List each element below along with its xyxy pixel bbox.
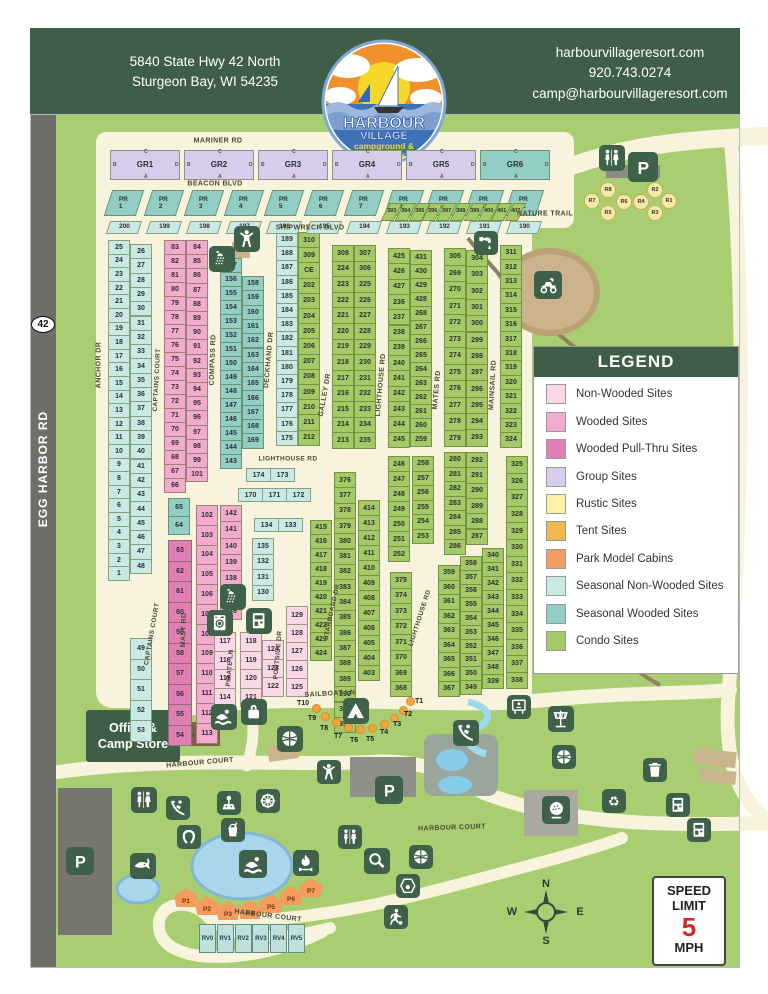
legend-label: Non-Wooded Sites [576,388,672,400]
site-172: 172 [286,488,311,502]
site-380: 380 [334,533,356,549]
site-279: 279 [444,430,466,448]
group-corner-letter: A [366,175,370,180]
site-205: 205 [298,323,320,339]
site-160: 160 [242,305,264,320]
site-139: 139 [220,554,242,571]
compass-s: S [542,935,549,947]
group-corner-letter: C [440,150,444,155]
site-345: 345 [482,618,504,633]
site-170: 170 [238,488,263,502]
site-350: 350 [460,666,482,681]
site-370: 370 [390,650,412,667]
site-411: 411 [358,545,380,561]
site-316: 316 [500,317,522,332]
waterslide-icon [453,720,479,746]
site-134: 134 [254,518,279,532]
site-92: 92 [186,354,208,369]
site-378: 378 [334,503,356,519]
site-154: 154 [220,300,242,315]
legend-swatch [546,604,566,624]
site-299: 299 [466,332,488,349]
site-164: 164 [242,362,264,377]
legend-title: LEGEND [534,347,738,377]
site-369: 369 [390,665,412,682]
site-368: 368 [390,681,412,698]
site-303: 303 [466,266,488,283]
rustic-site-R4: R4 [633,194,649,210]
site-150: 150 [220,356,242,371]
site-250: 250 [388,516,410,532]
site-147: 147 [220,398,242,413]
legend-swatch [546,549,566,569]
site-20: 20 [108,308,130,323]
site-323: 323 [500,418,522,433]
site-148: 148 [220,384,242,399]
site-318: 318 [500,346,522,361]
site-379: 379 [334,518,356,534]
site-218: 218 [332,354,354,371]
soccer-icon [384,905,408,929]
site-76: 76 [164,338,186,353]
site-425: 425 [388,248,410,264]
tent-site-label: T5 [366,736,374,743]
site-30: 30 [130,301,152,316]
site-302: 302 [466,283,488,300]
site-238: 238 [388,325,410,341]
site-335: 335 [506,622,528,640]
website-link[interactable]: harbourvillageresort.com [490,43,768,63]
site-276: 276 [444,380,466,398]
site-97: 97 [186,425,208,440]
site-312: 312 [500,259,522,274]
site-190: 190 [506,221,542,234]
site-36: 36 [130,387,152,402]
site-181: 181 [276,346,298,361]
site-355: 355 [460,597,482,612]
site-239: 239 [388,340,410,356]
site-171: 171 [262,488,287,502]
site-298: 298 [466,348,488,365]
site-337: 337 [506,655,528,673]
site-313: 313 [500,274,522,289]
site-199: 199 [146,221,182,234]
site-339: 339 [482,674,504,689]
site-285: 285 [444,525,466,541]
site-63: 63 [168,540,192,562]
site-27: 27 [130,258,152,273]
site-22: 22 [108,281,130,296]
site-222: 222 [332,292,354,309]
site-246: 246 [388,456,410,472]
site-258: 258 [412,456,434,472]
tent-site-dot-T6 [356,725,365,734]
site-51: 51 [130,679,152,701]
site-412: 412 [358,530,380,546]
site-206: 206 [298,338,320,354]
site-103: 103 [196,525,218,546]
site-161: 161 [242,319,264,334]
site-105: 105 [196,564,218,585]
site-254: 254 [412,514,434,530]
group-corner-letter: C [144,150,148,155]
site-166: 166 [242,390,264,405]
site-194: 194 [346,221,382,234]
site-78: 78 [164,310,186,325]
road-label: ANCHOR DR [96,342,103,388]
site-377: 377 [334,487,356,503]
group-corner-letter: D [175,163,179,168]
site-296: 296 [466,380,488,397]
site-126: 126 [286,660,308,679]
legend-item: Park Model Cabins [546,549,738,569]
site-382: 382 [334,564,356,580]
site-293: 293 [466,429,488,446]
site-243: 243 [388,401,410,417]
site-338: 338 [506,672,528,690]
recycle-icon: ♻ [602,789,626,813]
site-67: 67 [164,464,186,479]
site-268: 268 [410,306,432,321]
compass-e: E [576,906,583,918]
legend-label: Rustic Sites [576,498,637,510]
site-367: 367 [438,681,460,697]
site-41: 41 [130,459,152,474]
legend-item: Condo Sites [546,631,738,651]
site-3: 3 [108,539,130,554]
group-corner-letter: D [249,163,253,168]
svg-text:P: P [637,158,649,178]
shower-house-icon [220,584,246,610]
site-311: 311 [500,245,522,260]
site-142: 142 [220,505,242,522]
site-131: 131 [252,569,274,586]
site-223: 223 [332,276,354,293]
legend-item: Rustic Sites [546,494,738,514]
restroom-icon [599,145,625,171]
site-159: 159 [242,290,264,305]
site-292: 292 [466,452,488,468]
site-47: 47 [130,544,152,559]
site-372: 372 [390,619,412,636]
trash-icon [643,758,667,782]
rustic-site-R5: R5 [600,205,616,221]
site-203: 203 [298,293,320,309]
legend-swatch [546,412,566,432]
site-424: 424 [310,646,332,661]
tent-site-dot-T4 [380,720,389,729]
ice-machine-icon [246,608,272,634]
address-line1: 5840 State Hwy 42 North [90,52,320,72]
site-208: 208 [298,369,320,385]
group-corner-letter: A [440,175,444,180]
site-209: 209 [298,384,320,400]
rustic-site-R7: R7 [584,193,600,209]
site-409: 409 [358,575,380,591]
site-200: 200 [106,221,142,234]
site-272: 272 [444,314,466,332]
site-277: 277 [444,397,466,415]
harbour-village-logo: HARBOUR VILLAGE campground & water park [318,36,450,168]
dump-station-icon [687,818,711,842]
site-213: 213 [332,432,354,449]
site-184: 184 [276,303,298,318]
site-245: 245 [388,432,410,448]
legend-label: Wooded Pull-Thru Sites [576,443,697,455]
site-85: 85 [186,254,208,269]
site-244: 244 [388,416,410,432]
site-427: 427 [388,279,410,295]
site-16: 16 [108,362,130,377]
site-240: 240 [388,355,410,371]
site-37: 37 [130,401,152,416]
site-389: 389 [334,671,356,687]
site-82: 82 [164,254,186,269]
legend-swatch [546,576,566,596]
site-62: 62 [168,561,192,583]
campfire-icon [293,850,319,876]
site-334: 334 [506,605,528,623]
rustic-site-R2: R2 [647,182,663,198]
site-234: 234 [354,417,376,434]
site-419: 419 [310,576,332,591]
dump-station-icon [666,793,690,817]
photo-frame-icon [507,695,531,719]
site-48: 48 [130,559,152,574]
site-360: 360 [438,580,460,596]
site-358: 358 [460,556,482,571]
site-152: 152 [220,328,242,343]
site-135: 135 [252,538,274,555]
site-236: 236 [388,294,410,310]
site-306: 306 [354,261,376,278]
site-225: 225 [354,276,376,293]
site-388: 388 [334,656,356,672]
tent-site-label: T4 [380,729,388,736]
playground-icon [317,760,341,784]
horseshoe-pit-icon [177,825,201,849]
site-300: 300 [466,315,488,332]
site-144: 144 [220,440,242,455]
site-429: 429 [410,278,432,293]
site-269: 269 [444,265,466,283]
legend-items: Non-Wooded SitesWooded SitesWooded Pull-… [534,384,738,651]
site-127: 127 [286,642,308,661]
site-176: 176 [276,417,298,432]
phone-number[interactable]: 920.743.0274 [490,63,768,83]
compass-w: W [507,906,517,918]
site-373: 373 [390,603,412,620]
site-307: 307 [354,245,376,262]
legend-label: Condo Sites [576,635,639,647]
legend-swatch [546,439,566,459]
site-417: 417 [310,548,332,563]
site-364: 364 [438,638,460,654]
site-275: 275 [444,364,466,382]
group-site-GR1: GR1CBDA [110,150,180,180]
site-106: 106 [196,584,218,605]
site-119: 119 [240,651,262,671]
site-229: 229 [354,339,376,356]
tent-site-dot-T10 [312,704,321,713]
site-322: 322 [500,403,522,418]
site-26: 26 [130,244,152,259]
site-308: 308 [332,245,354,262]
sandbox-icon [221,818,245,842]
site-178: 178 [276,388,298,403]
contact-block: harbourvillageresort.com 920.743.0274 ca… [490,43,768,104]
site-290: 290 [466,483,488,499]
tent-site-label: T10 [297,700,309,707]
site-214: 214 [332,417,354,434]
site-118: 118 [240,632,262,652]
site-177: 177 [276,402,298,417]
site-216: 216 [332,385,354,402]
group-corner-letter: D [471,163,475,168]
site-257: 257 [412,471,434,487]
legend-label: Seasonal Non-Wooded Sites [576,580,723,592]
site-320: 320 [500,375,522,390]
speed-value: 5 [654,914,724,941]
site-204: 204 [298,308,320,324]
site-202: 202 [298,278,320,294]
site-174: 174 [246,468,271,482]
site-267: 267 [410,320,432,335]
site-155: 155 [220,286,242,301]
site-44: 44 [130,501,152,516]
email-link[interactable]: camp@harbourvillageresort.com [490,84,768,104]
group-corner-letter: A [292,175,296,180]
site-297: 297 [466,364,488,381]
site-324: 324 [500,432,522,447]
site-415: 415 [310,520,332,535]
site-86: 86 [186,268,208,283]
site-242: 242 [388,386,410,402]
site-349: 349 [460,680,482,695]
site-89: 89 [186,311,208,326]
legend-swatch [546,467,566,487]
baseball-icon [552,745,576,769]
site-207: 207 [298,354,320,370]
site-40: 40 [130,444,152,459]
site-260: 260 [410,418,432,433]
site-98: 98 [186,439,208,454]
site-14: 14 [108,390,130,405]
site-263: 263 [410,376,432,391]
site-28: 28 [130,273,152,288]
site-381: 381 [334,549,356,565]
site-52: 52 [130,700,152,722]
atv-icon [534,271,562,299]
tent-site-label: T8 [320,725,328,732]
tent-site-label: T2 [404,711,412,718]
site-305: 305 [444,248,466,266]
site-93: 93 [186,368,208,383]
site-333: 333 [506,589,528,607]
rustic-site-R1: R1 [661,193,677,209]
group-corner-letter: B [409,163,413,168]
site-120: 120 [240,669,262,689]
site-295: 295 [466,397,488,414]
site-23: 23 [108,267,130,282]
group-corner-letter: C [366,150,370,155]
rv-site-RV1: RV1 [217,924,234,953]
site-426: 426 [388,263,410,279]
tent-area-icon [343,698,369,724]
fishing-pond-icon [130,853,156,879]
site-228: 228 [354,323,376,340]
site-289: 289 [466,498,488,514]
address-line2: Sturgeon Bay, WI 54235 [90,72,320,92]
site-252: 252 [388,546,410,562]
legend-item: Wooded Pull-Thru Sites [546,439,738,459]
legend-label: Group Sites [576,471,637,483]
waterslide-icon [166,796,190,820]
legend-label: Wooded Sites [576,416,647,428]
site-248: 248 [388,486,410,502]
site-13: 13 [108,403,130,418]
site-249: 249 [388,501,410,517]
site-361: 361 [438,594,460,610]
legend-label: Tent Sites [576,525,627,537]
game-room-icon [217,791,241,815]
site-418: 418 [310,562,332,577]
site-287: 287 [466,529,488,545]
site-282: 282 [444,481,466,497]
shower-house-icon [209,246,235,272]
site-232: 232 [354,385,376,402]
site-414: 414 [358,500,380,516]
compass-n: N [542,878,550,890]
site-143: 143 [220,454,242,469]
group-corner-letter: D [323,163,327,168]
site-410: 410 [358,560,380,576]
road-label: NATURE TRAIL [517,211,573,218]
site-227: 227 [354,307,376,324]
site-65: 65 [168,498,190,517]
pool-icon [211,704,237,730]
site-235: 235 [354,432,376,449]
legend-swatch [546,384,566,404]
rv-site-RV0: RV0 [199,924,216,953]
site-406: 406 [358,620,380,636]
group-corner-letter: D [397,163,401,168]
site-6: 6 [108,498,130,513]
restroom-icon [338,825,362,849]
site-87: 87 [186,283,208,298]
site-310: 310 [298,232,320,248]
mini-golf-icon [542,796,570,824]
site-327: 327 [506,489,528,507]
site-344: 344 [482,604,504,619]
site-33: 33 [130,344,152,359]
site-404: 404 [358,650,380,666]
site-129: 129 [286,606,308,625]
site-241: 241 [388,370,410,386]
address-block: 5840 State Hwy 42 North Sturgeon Bay, WI… [90,52,320,93]
site-405: 405 [358,635,380,651]
site-66: 66 [164,478,186,493]
site-357: 357 [460,570,482,585]
group-corner-letter: C [514,150,518,155]
site-74: 74 [164,366,186,381]
site-407: 407 [358,605,380,621]
site-219: 219 [332,339,354,356]
site-2: 2 [108,553,130,568]
site-348: 348 [482,660,504,675]
site-347: 347 [482,646,504,661]
site-24: 24 [108,254,130,269]
